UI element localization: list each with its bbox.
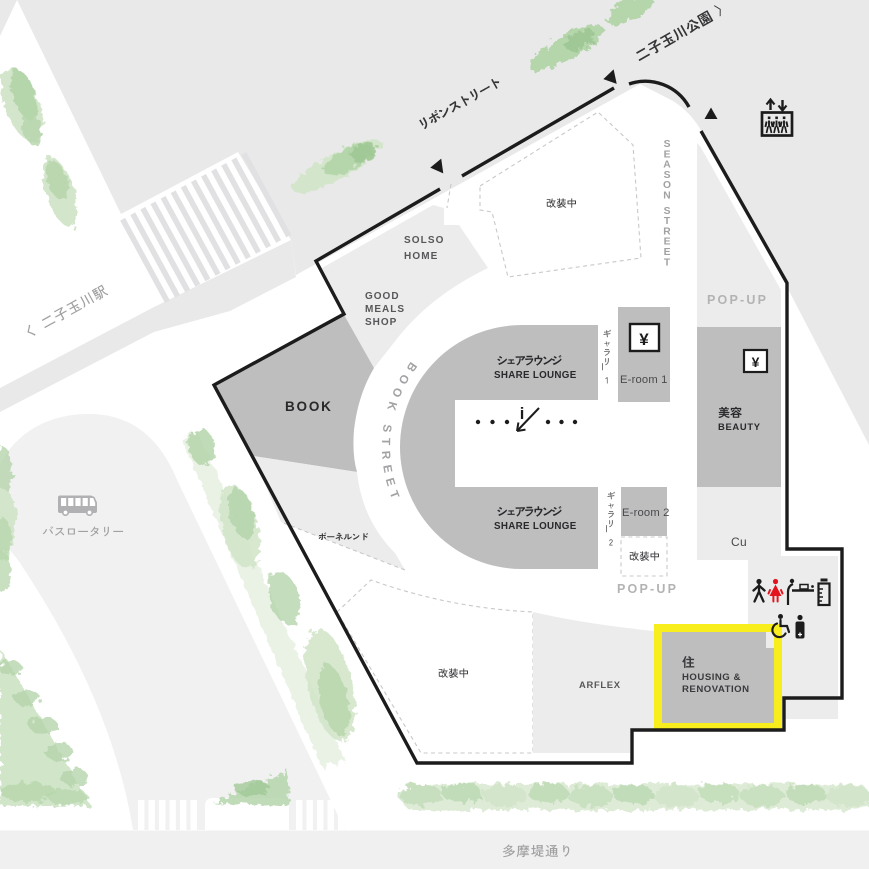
svg-text:GOOD: GOOD xyxy=(365,291,400,302)
svg-text:T: T xyxy=(664,257,671,268)
svg-text:SHOP: SHOP xyxy=(365,317,397,328)
svg-text:HOME: HOME xyxy=(404,251,438,262)
svg-text:BEAUTY: BEAUTY xyxy=(718,421,761,432)
svg-text:BOOK: BOOK xyxy=(285,399,333,414)
svg-text:E-room 2: E-room 2 xyxy=(622,507,670,519)
svg-text:POP-UP: POP-UP xyxy=(617,582,678,596)
svg-text:SOLSO: SOLSO xyxy=(404,235,445,246)
svg-text:E-room 1: E-room 1 xyxy=(620,374,668,386)
svg-text:MEALS: MEALS xyxy=(365,304,405,315)
svg-text:ARFLEX: ARFLEX xyxy=(579,679,621,690)
svg-text:SHARE LOUNGE: SHARE LOUNGE xyxy=(494,521,577,532)
svg-text:N: N xyxy=(663,191,670,202)
svg-text:HOUSING &: HOUSING & xyxy=(682,672,741,683)
svg-text:Cu: Cu xyxy=(731,535,747,549)
svg-text:POP-UP: POP-UP xyxy=(707,293,768,307)
svg-text:¥: ¥ xyxy=(752,354,760,370)
svg-text:SHARE LOUNGE: SHARE LOUNGE xyxy=(494,370,577,381)
svg-text:RENOVATION: RENOVATION xyxy=(682,684,750,695)
svg-text:i: i xyxy=(520,405,525,423)
svg-text:¥: ¥ xyxy=(639,330,649,349)
